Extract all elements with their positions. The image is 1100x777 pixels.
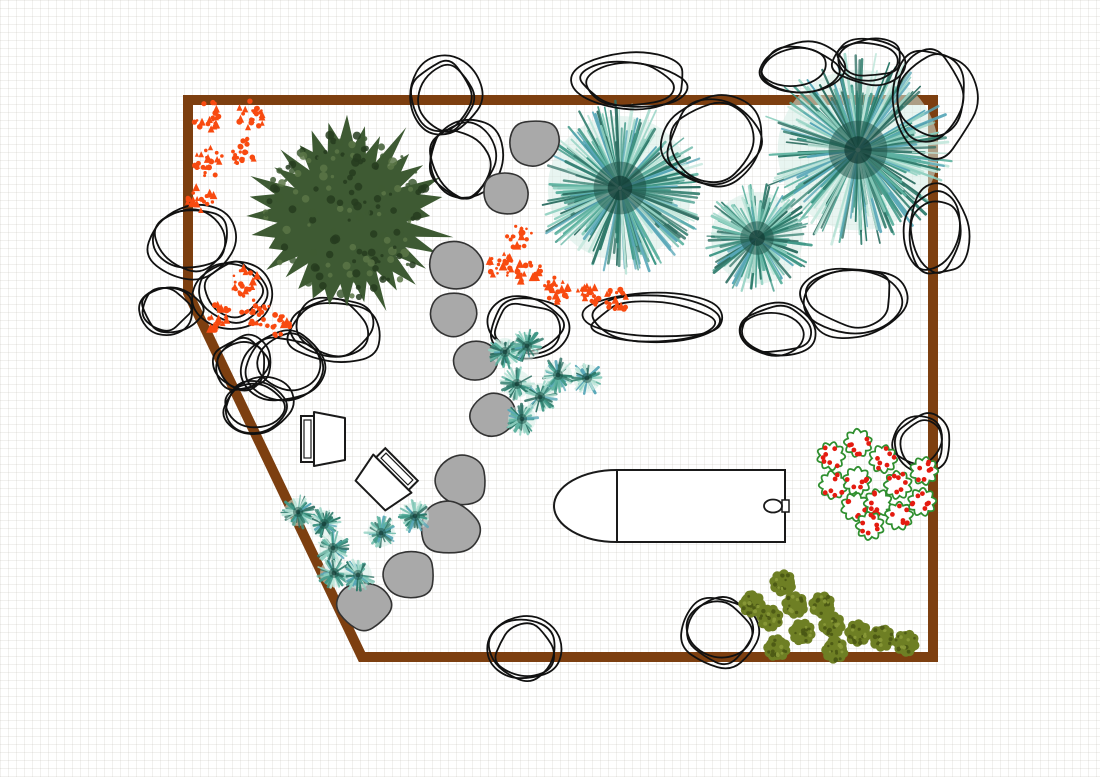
berry-flower[interactable]	[869, 445, 897, 473]
orange-flower-cluster[interactable]	[231, 137, 257, 165]
stepping-stone[interactable]	[435, 455, 485, 505]
chair[interactable]	[301, 412, 345, 466]
olive-shrub[interactable]	[869, 625, 895, 652]
plan-drawing	[0, 0, 1100, 777]
stepping-stone[interactable]	[430, 293, 476, 337]
berry-flower[interactable]	[884, 471, 912, 499]
conifer-layer	[246, 115, 453, 311]
olive-shrub[interactable]	[821, 636, 848, 663]
teal-tree[interactable]	[543, 101, 702, 274]
rock[interactable]	[192, 262, 272, 329]
olive-shrub[interactable]	[769, 569, 796, 596]
rock[interactable]	[740, 303, 816, 356]
conifer-tree[interactable]	[246, 115, 453, 311]
rock[interactable]	[800, 269, 908, 338]
stepping-stone[interactable]	[430, 241, 484, 288]
berry-flower[interactable]	[817, 442, 845, 470]
garden-plan-canvas	[0, 0, 1100, 777]
olive-shrubs-layer	[738, 569, 919, 663]
olive-shrub[interactable]	[781, 591, 807, 619]
berry-flower[interactable]	[911, 457, 939, 485]
teal-plant[interactable]	[511, 330, 542, 361]
orange-flower-cluster[interactable]	[543, 276, 572, 305]
berry-flower[interactable]	[843, 467, 871, 495]
berry-flower[interactable]	[819, 471, 847, 499]
orange-flower-cluster[interactable]	[192, 145, 224, 178]
berry-flower[interactable]	[844, 429, 872, 457]
orange-flower-cluster[interactable]	[515, 259, 543, 285]
stepping-stone[interactable]	[510, 121, 559, 166]
olive-shrub[interactable]	[763, 634, 790, 661]
orange-flower-cluster[interactable]	[576, 283, 602, 307]
olive-shrub[interactable]	[788, 619, 815, 645]
berry-flowers-layer	[817, 429, 938, 540]
orange-flower-cluster[interactable]	[231, 264, 261, 298]
olive-shrub[interactable]	[844, 619, 871, 647]
rock[interactable]	[287, 298, 379, 362]
teal-plant[interactable]	[570, 364, 601, 394]
stepping-stone[interactable]	[383, 552, 433, 598]
orange-flower-cluster[interactable]	[505, 225, 533, 250]
teal-plant[interactable]	[310, 508, 340, 538]
orange-flower-cluster[interactable]	[486, 252, 515, 278]
stepping-stone[interactable]	[484, 173, 528, 214]
stepping-stone[interactable]	[422, 501, 481, 553]
teal-plant[interactable]	[365, 517, 396, 547]
berry-flower[interactable]	[885, 502, 913, 530]
teal-plant[interactable]	[507, 404, 537, 435]
grill[interactable]	[554, 470, 789, 542]
rock[interactable]	[582, 293, 722, 343]
rock[interactable]	[241, 330, 326, 400]
rock[interactable]	[487, 616, 561, 681]
